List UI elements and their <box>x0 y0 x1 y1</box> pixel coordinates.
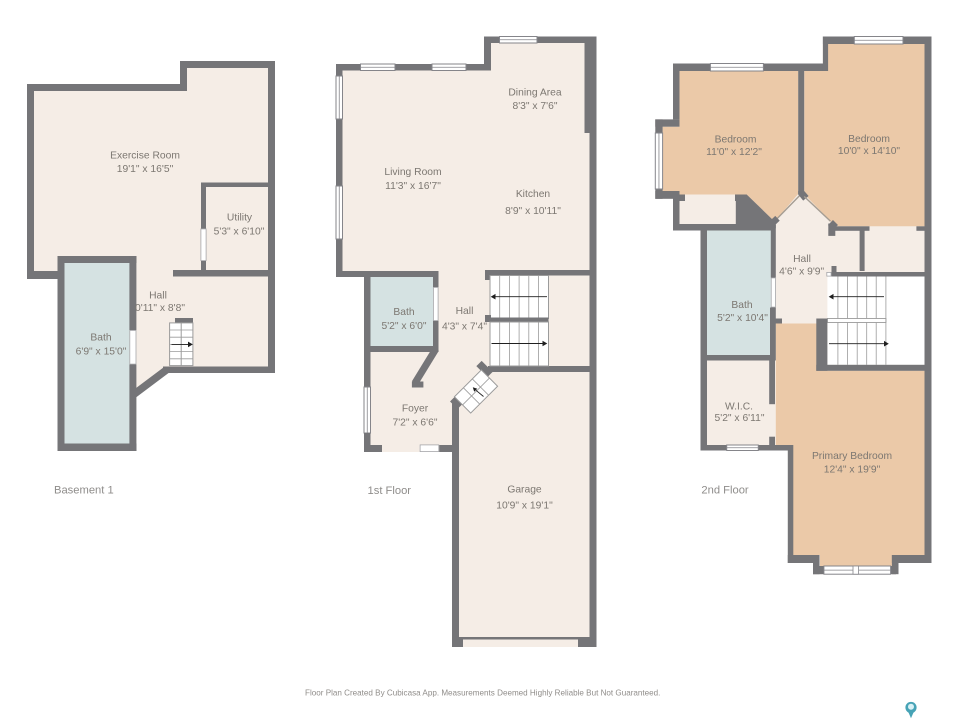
svg-text:0'11" x 8'8": 0'11" x 8'8" <box>135 303 185 314</box>
svg-text:1st Floor: 1st Floor <box>368 485 412 497</box>
svg-text:Bath: Bath <box>90 333 111 344</box>
svg-text:Garage: Garage <box>507 485 542 496</box>
svg-text:4'6" x 9'9": 4'6" x 9'9" <box>779 267 824 278</box>
svg-text:Bedroom: Bedroom <box>848 134 890 145</box>
svg-text:11'0" x 12'2": 11'0" x 12'2" <box>706 147 762 158</box>
svg-text:Kitchen: Kitchen <box>516 189 551 200</box>
svg-text:2nd Floor: 2nd Floor <box>701 485 749 497</box>
svg-text:8'9" x 10'11": 8'9" x 10'11" <box>505 206 561 217</box>
svg-text:7'2" x 6'6": 7'2" x 6'6" <box>392 418 437 429</box>
svg-text:6'9" x 15'0": 6'9" x 15'0" <box>76 347 127 358</box>
svg-text:Hall: Hall <box>149 291 167 302</box>
svg-text:Bath: Bath <box>731 300 752 311</box>
svg-text:Living Room: Living Room <box>384 167 441 178</box>
svg-text:12'4" x 19'9": 12'4" x 19'9" <box>824 465 881 476</box>
svg-text:8'3" x 7'6": 8'3" x 7'6" <box>512 101 557 112</box>
svg-text:Hall: Hall <box>456 306 474 317</box>
svg-text:5'2" x 10'4": 5'2" x 10'4" <box>717 313 768 324</box>
svg-text:5'2" x 6'11": 5'2" x 6'11" <box>715 413 765 424</box>
svg-text:Foyer: Foyer <box>402 404 429 415</box>
svg-text:Bedroom: Bedroom <box>715 135 757 146</box>
svg-text:4'3" x 7'4": 4'3" x 7'4" <box>442 322 487 333</box>
svg-text:Dining Area: Dining Area <box>508 88 562 99</box>
svg-text:Floor Plan Created By Cubicasa: Floor Plan Created By Cubicasa App. Meas… <box>305 689 660 698</box>
svg-text:11'3" x 16'7": 11'3" x 16'7" <box>385 181 441 192</box>
svg-text:5'2" x 6'0": 5'2" x 6'0" <box>381 321 426 332</box>
svg-text:10'9" x 19'1": 10'9" x 19'1" <box>496 501 553 512</box>
svg-text:Bath: Bath <box>393 307 414 318</box>
svg-text:Primary Bedroom: Primary Bedroom <box>812 451 892 462</box>
svg-text:10'0" x 14'10": 10'0" x 14'10" <box>838 146 901 157</box>
svg-text:W.I.C.: W.I.C. <box>725 402 753 413</box>
svg-text:Hall: Hall <box>793 254 811 265</box>
svg-text:19'1" x 16'5": 19'1" x 16'5" <box>117 164 174 175</box>
svg-text:Basement 1: Basement 1 <box>54 485 114 497</box>
svg-text:Utility: Utility <box>227 213 253 224</box>
svg-text:Exercise Room: Exercise Room <box>110 151 180 162</box>
svg-text:5'3" x 6'10": 5'3" x 6'10" <box>214 227 265 238</box>
